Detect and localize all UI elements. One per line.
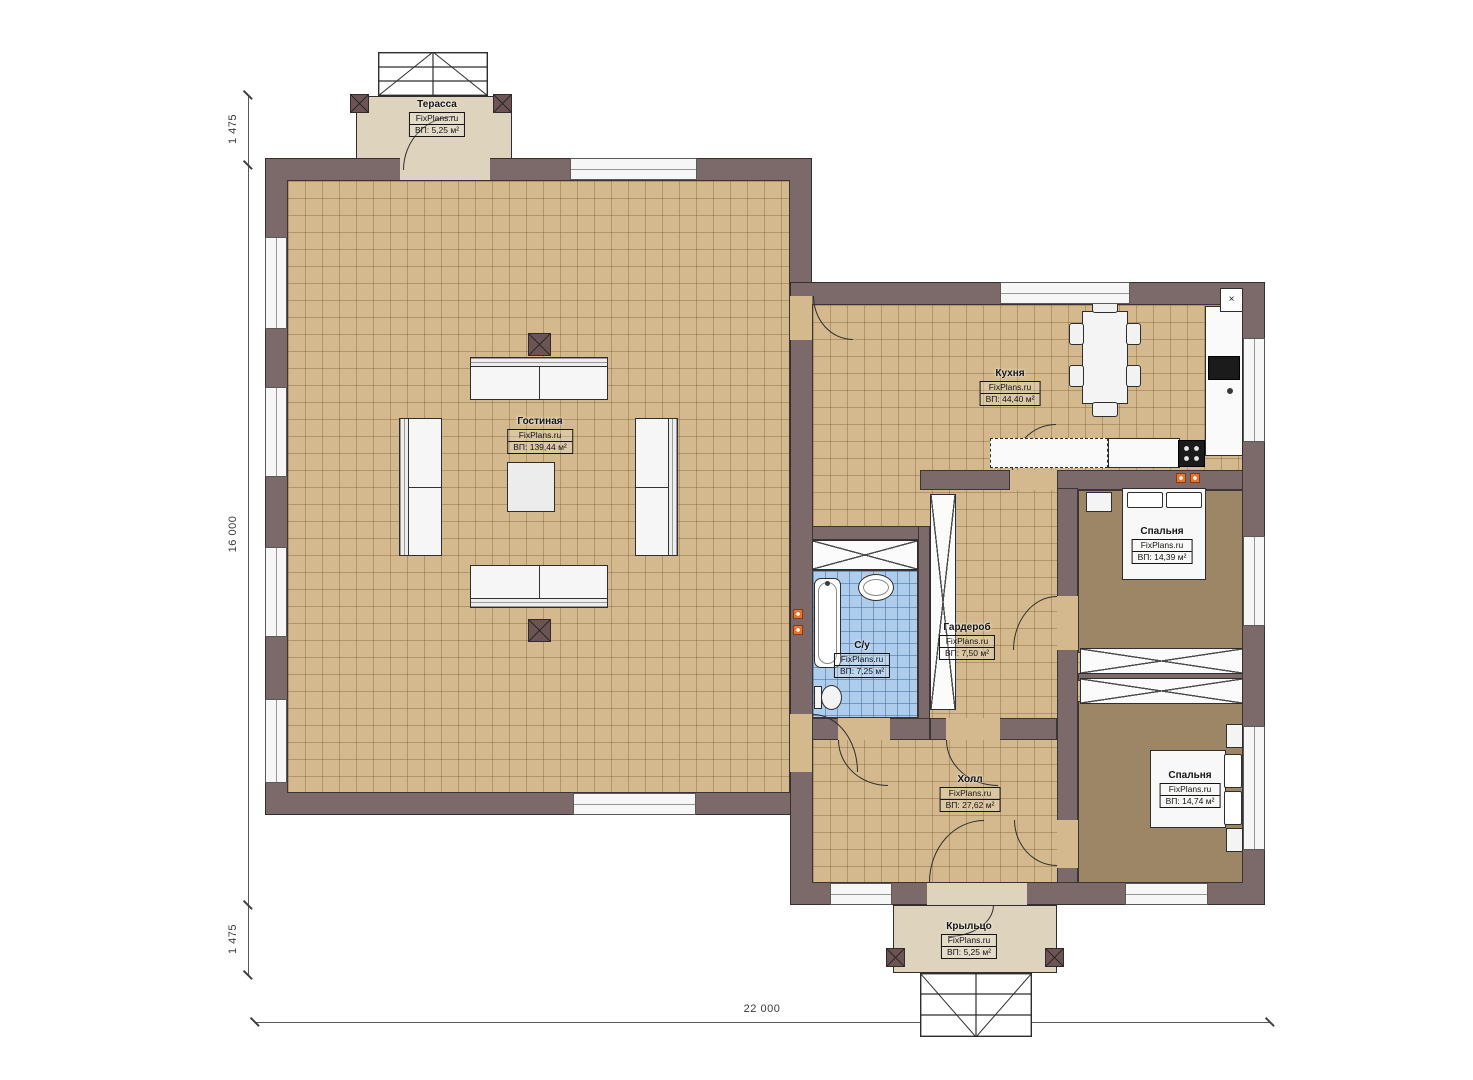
radiator-marker <box>793 625 803 635</box>
sofa-back <box>668 419 677 555</box>
dimension-label-left-main: 16 000 <box>227 504 239 564</box>
dining-chair-bottom <box>1092 402 1118 417</box>
room-label-terrace: Терасса FixPlans.ru ВП: 5,25 м² <box>409 99 465 138</box>
room-name: Спальня <box>1132 526 1193 537</box>
sofa-top <box>470 357 608 400</box>
living-room-column-bottom <box>528 619 551 642</box>
kitchen-stove <box>1178 440 1205 467</box>
porch-post-left <box>886 948 905 967</box>
sofa-cushion-divider <box>539 566 540 598</box>
room-area: ВП: 7,50 м² <box>940 648 994 659</box>
room-label-bedroom2: Спальня FixPlans.ru ВП: 14,74 м² <box>1160 770 1221 809</box>
brand-text: FixPlans.ru <box>508 430 572 442</box>
sofa-bottom <box>470 565 608 608</box>
porch-post-right <box>1045 948 1064 967</box>
window-hall-south <box>830 883 892 905</box>
window-kitchen-east <box>1243 338 1265 442</box>
radiator-marker <box>793 609 803 619</box>
kitchen-sink-drain <box>1227 388 1233 394</box>
room-info-box: FixPlans.ru ВП: 7,50 м² <box>939 635 995 660</box>
room-area: ВП: 5,25 м² <box>942 947 996 958</box>
room-info-box: FixPlans.ru ВП: 139,44 м² <box>507 429 573 454</box>
room-area: ВП: 14,39 м² <box>1133 552 1192 563</box>
sofa-left <box>399 418 442 556</box>
sofa-cushion-divider <box>409 487 441 488</box>
room-area: ВП: 44,40 м² <box>981 394 1040 405</box>
sofa-cushion-divider <box>636 487 668 488</box>
room-info-box: FixPlans.ru ВП: 14,39 м² <box>1132 539 1193 564</box>
room-label-bathroom: С/у FixPlans.ru ВП: 7,25 м² <box>834 640 890 679</box>
bathroom-sink <box>858 574 894 601</box>
kitchen-vent-unit: × <box>1220 288 1243 312</box>
dimension-label-left-top: 1 475 <box>227 99 239 159</box>
room-area: ВП: 5,25 м² <box>410 125 464 136</box>
bathroom-closet <box>812 540 918 570</box>
brand-text: FixPlans.ru <box>940 636 994 648</box>
dining-chair-right-2 <box>1126 365 1141 387</box>
dimension-line-bottom <box>255 1022 1270 1023</box>
wardrobe-cabinet <box>930 494 956 710</box>
dimension-label-bottom-total: 22 000 <box>712 1003 812 1015</box>
window-living-top <box>570 158 697 180</box>
door-opening-bedroom1 <box>1057 596 1078 650</box>
window-living-left-4 <box>265 699 287 783</box>
sofa-back <box>471 358 607 367</box>
dimension-line-left <box>248 95 249 975</box>
room-label-hall: Холл FixPlans.ru ВП: 27,62 м² <box>940 774 1001 813</box>
sofa-cushion-divider <box>539 367 540 399</box>
terrace-stairs <box>378 52 488 96</box>
brand-text: FixPlans.ru <box>835 654 889 666</box>
sofa-back <box>400 419 409 555</box>
door-opening-bedroom2 <box>1057 820 1078 868</box>
kitchen-counter-east <box>1205 306 1243 456</box>
bedroom2-nightstand-top <box>1226 724 1243 748</box>
bedroom2-pillow-top <box>1224 754 1242 788</box>
room-label-kitchen: Кухня FixPlans.ru ВП: 44,40 м² <box>980 368 1041 407</box>
room-label-wardrobe: Гардероб FixPlans.ru ВП: 7,50 м² <box>939 622 995 661</box>
brand-text: FixPlans.ru <box>942 935 996 947</box>
room-area: ВП: 27,62 м² <box>941 800 1000 811</box>
room-name: Спальня <box>1160 770 1221 781</box>
bedroom1-pillow-right <box>1166 492 1202 508</box>
room-info-box: FixPlans.ru ВП: 5,25 м² <box>941 934 997 959</box>
bedroom1-pillow-left <box>1127 492 1163 508</box>
window-bedroom2-east <box>1243 726 1265 850</box>
window-living-bottom <box>573 793 696 815</box>
dining-chair-left-2 <box>1069 365 1084 387</box>
sofa-back <box>471 598 607 607</box>
kitchen-counter-south-upper <box>990 438 1108 468</box>
bedroom2-closet <box>1080 678 1243 704</box>
floor-plan-canvas: 1 475 16 000 1 475 22 000 <box>0 0 1473 1080</box>
room-info-box: FixPlans.ru ВП: 27,62 м² <box>940 787 1001 812</box>
coffee-table <box>507 462 555 512</box>
wall-kitchen-south-right <box>1057 470 1243 490</box>
room-name: С/у <box>834 640 890 651</box>
window-living-left-3 <box>265 547 287 637</box>
radiator-marker <box>1190 473 1200 483</box>
radiator-marker <box>1176 473 1186 483</box>
door-opening-wardrobe <box>946 718 1000 740</box>
room-area: ВП: 7,25 м² <box>835 666 889 677</box>
room-name: Крыльцо <box>941 921 997 932</box>
dining-chair-right-1 <box>1126 323 1141 345</box>
room-info-box: FixPlans.ru ВП: 7,25 м² <box>834 653 890 678</box>
room-label-living: Гостиная FixPlans.ru ВП: 139,44 м² <box>507 416 573 455</box>
sofa-right <box>635 418 678 556</box>
brand-text: FixPlans.ru <box>410 113 464 125</box>
room-info-box: FixPlans.ru ВП: 14,74 м² <box>1160 783 1221 808</box>
window-bedroom2-south <box>1125 883 1208 905</box>
terrace-post-right <box>493 94 512 113</box>
room-area: ВП: 139,44 м² <box>508 442 572 453</box>
door-opening-living-kitchen <box>790 296 812 340</box>
brand-text: FixPlans.ru <box>1161 784 1220 796</box>
room-info-box: FixPlans.ru ВП: 5,25 м² <box>409 112 465 137</box>
dining-chair-left-1 <box>1069 323 1084 345</box>
brand-text: FixPlans.ru <box>1133 540 1192 552</box>
kitchen-counter-south <box>1108 438 1180 468</box>
room-info-box: FixPlans.ru ВП: 44,40 м² <box>980 381 1041 406</box>
terrace-post-left <box>350 94 369 113</box>
bedroom1-nightstand <box>1086 492 1112 512</box>
window-living-left-1 <box>265 237 287 329</box>
wall-bathroom-east <box>918 526 930 740</box>
brand-text: FixPlans.ru <box>941 788 1000 800</box>
wall-kitchen-south-left <box>920 470 1010 490</box>
room-name: Гардероб <box>939 622 995 633</box>
brand-text: FixPlans.ru <box>981 382 1040 394</box>
bedroom2-pillow-bottom <box>1224 791 1242 825</box>
room-name: Терасса <box>409 99 465 110</box>
door-opening-living-hall <box>790 714 812 772</box>
wall-bathroom-north <box>812 526 930 540</box>
window-bedroom1-east <box>1243 536 1265 626</box>
room-name: Гостиная <box>507 416 573 427</box>
toilet-bowl <box>821 685 842 710</box>
living-room-column-top <box>528 333 551 356</box>
bedroom2-nightstand-bottom <box>1226 828 1243 852</box>
room-area: ВП: 14,74 м² <box>1161 796 1220 807</box>
room-label-bedroom1: Спальня FixPlans.ru ВП: 14,39 м² <box>1132 526 1193 565</box>
room-name: Холл <box>940 774 1001 785</box>
window-kitchen-top <box>1000 282 1130 304</box>
bedroom1-closet <box>1080 648 1243 674</box>
room-label-porch: Крыльцо FixPlans.ru ВП: 5,25 м² <box>941 921 997 960</box>
bathtub-faucet <box>825 581 830 586</box>
door-opening-entry <box>927 883 1027 905</box>
porch-stairs <box>920 973 1032 1037</box>
kitchen-oven <box>1208 356 1240 380</box>
door-opening-kitchen-hall <box>1010 470 1057 490</box>
window-living-left-2 <box>265 387 287 477</box>
dimension-label-left-bottom: 1 475 <box>227 909 239 969</box>
dining-table <box>1082 311 1128 404</box>
room-name: Кухня <box>980 368 1041 379</box>
